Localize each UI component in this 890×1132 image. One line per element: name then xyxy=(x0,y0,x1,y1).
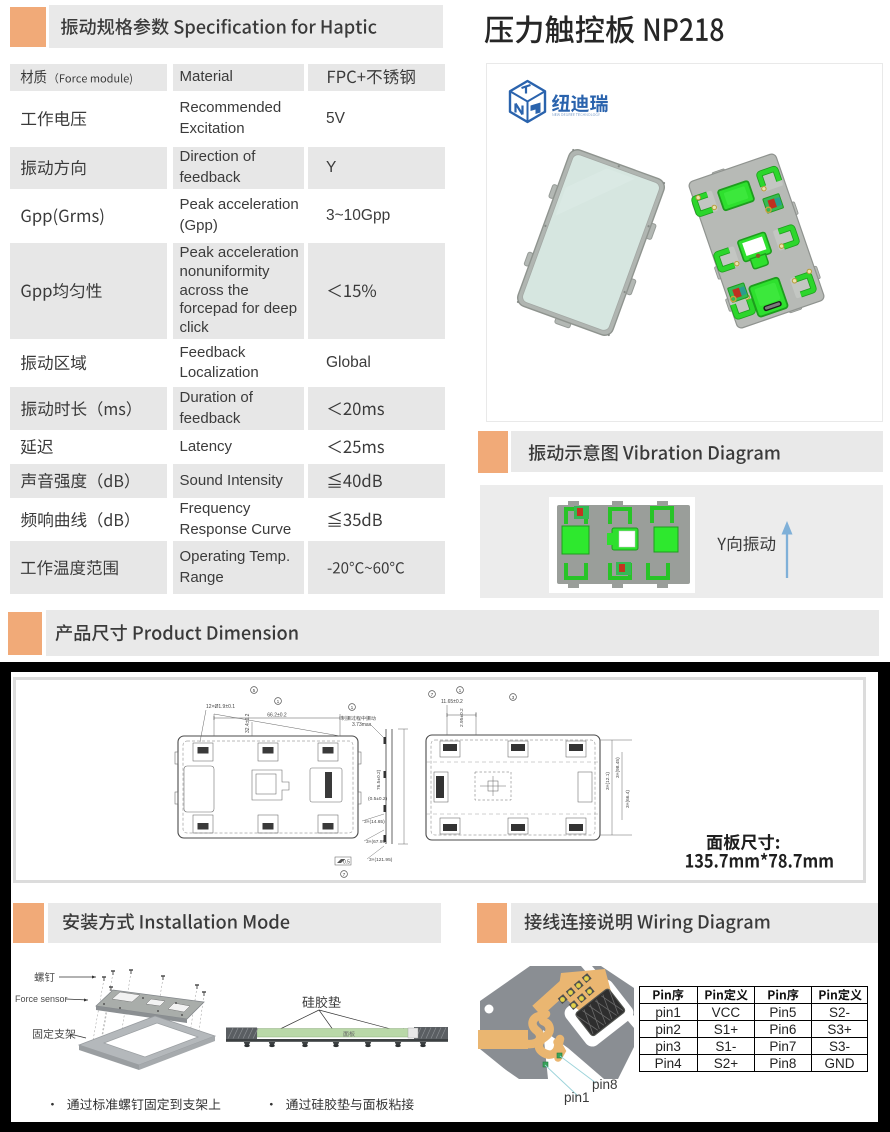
svg-text:3.73max: 3.73max xyxy=(352,722,372,728)
svg-text:3×(12.1): 3×(12.1) xyxy=(605,772,611,790)
svg-text:pin8: pin8 xyxy=(592,1077,618,1092)
svg-text:2.95±0.2: 2.95±0.2 xyxy=(459,708,465,727)
svg-text:3×(98.45): 3×(98.45) xyxy=(615,757,621,778)
svg-text:11.65±0.2: 11.65±0.2 xyxy=(441,699,463,705)
svg-text:66.2±0.2: 66.2±0.2 xyxy=(267,713,287,719)
svg-text:7: 7 xyxy=(343,872,346,878)
svg-text:pin1: pin1 xyxy=(564,1090,590,1105)
svg-text:3×(66.4): 3×(66.4) xyxy=(625,790,631,808)
svg-text:(0.5±0.2): (0.5±0.2) xyxy=(368,796,388,802)
svg-text:3×(121.95): 3×(121.95) xyxy=(369,857,393,863)
svg-text:7: 7 xyxy=(431,692,434,698)
svg-text:3×(14.65): 3×(14.65) xyxy=(364,819,385,825)
svg-text:32.4±0.2: 32.4±0.2 xyxy=(245,713,251,733)
svg-text:0.5: 0.5 xyxy=(343,860,350,866)
svg-text:1: 1 xyxy=(277,699,280,705)
svg-text:3: 3 xyxy=(512,695,515,701)
svg-text:Force sensor: Force sensor xyxy=(15,994,68,1004)
svg-text:5: 5 xyxy=(253,688,256,694)
svg-text:1: 1 xyxy=(459,688,462,694)
svg-text:76.5±0.2): 76.5±0.2) xyxy=(376,769,382,790)
svg-text:1: 1 xyxy=(351,705,354,711)
svg-text:3×(67.95): 3×(67.95) xyxy=(366,839,387,845)
svg-text:12×Ø1.9±0.1: 12×Ø1.9±0.1 xyxy=(206,704,235,710)
